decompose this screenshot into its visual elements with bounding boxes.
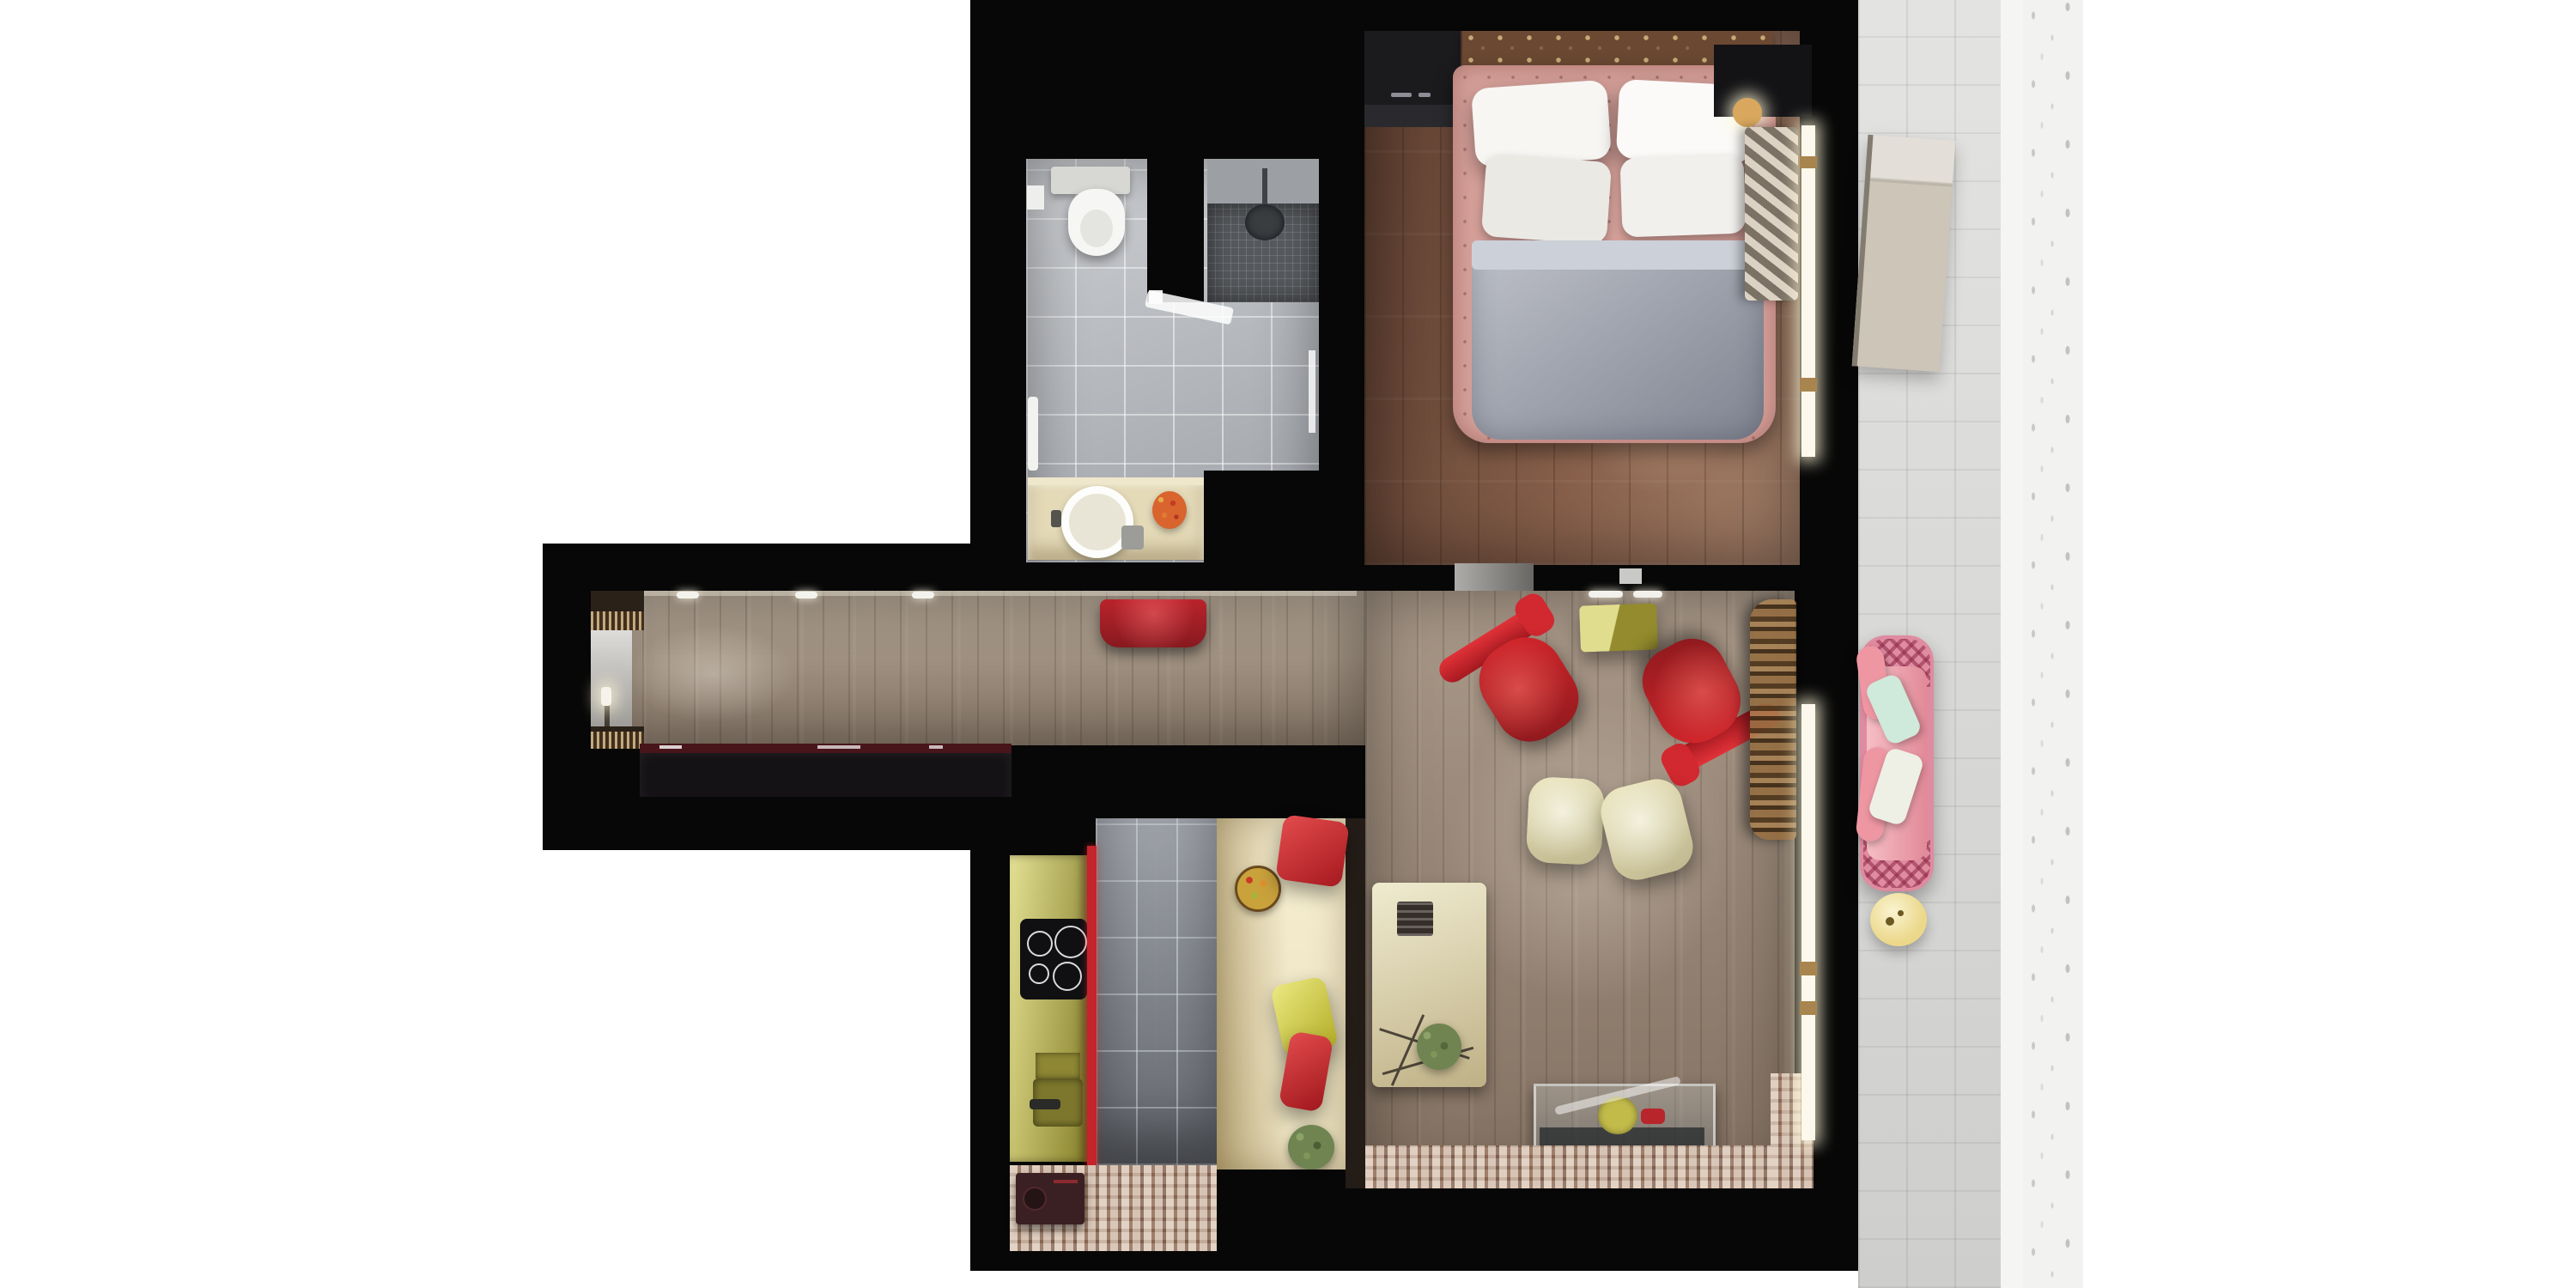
floor-plan-canvas	[0, 0, 2576, 1288]
sun-lounger	[1852, 135, 1956, 372]
table-decor-dot	[1886, 917, 1894, 926]
pink-wicker-sofa	[1860, 635, 1934, 891]
balcony	[0, 0, 2576, 1288]
balcony-side-table	[1870, 893, 1927, 946]
table-decor-dot	[1898, 910, 1904, 916]
